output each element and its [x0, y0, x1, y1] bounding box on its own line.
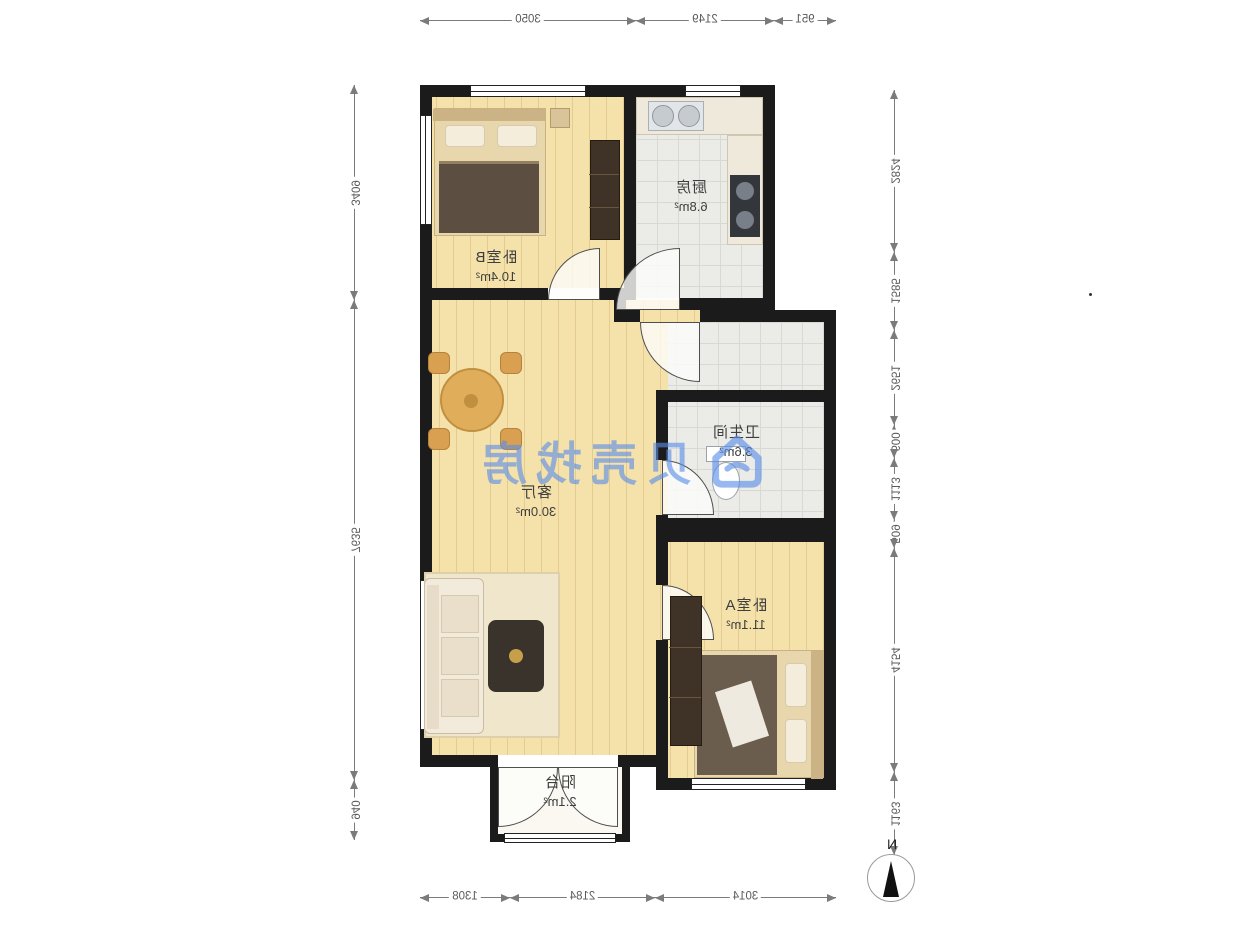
dim-bottom-3: 1308 [420, 897, 510, 898]
wall-entry-left [700, 310, 836, 322]
watermark-text: 贝壳找房 [472, 428, 692, 494]
bedroom-b-wardrobe [590, 140, 620, 240]
dim-value: 2149 [689, 14, 721, 27]
dining-table [440, 368, 504, 432]
dining-chair [500, 352, 522, 374]
bedroom-a-window [691, 778, 806, 790]
dim-bottom-2: 2184 [510, 897, 655, 898]
bed-pillow [785, 663, 807, 707]
sofa-cushion [441, 637, 479, 675]
room-area: 10.4m² [474, 269, 517, 284]
dim-left-3: 2651 [894, 330, 895, 425]
kitchen-counter-top [636, 97, 763, 135]
room-label-bedroom-b: 卧室B 10.4m² [474, 246, 517, 284]
dim-top-2: 2149 [636, 20, 774, 21]
kitchen-stove [730, 175, 760, 237]
dim-value: 940 [347, 797, 360, 822]
wall-beda-right-upper [656, 530, 668, 585]
coffee-table-decor [509, 649, 523, 663]
stove-burner [736, 211, 754, 229]
dim-value: 951 [792, 14, 817, 27]
dim-top-1: 951 [774, 20, 836, 21]
dim-bottom-1: 3014 [655, 897, 836, 898]
dim-left-2: 1585 [894, 252, 895, 330]
room-name: 阳台 [543, 771, 576, 792]
sofa [424, 578, 484, 734]
wall-beda-top [656, 530, 836, 542]
bed-pillow [497, 125, 537, 147]
wall-living-bottom-left [618, 755, 656, 767]
dim-left-1: 2824 [894, 90, 895, 252]
dim-left-4: 600 [894, 425, 895, 458]
wardrobe-divider [589, 207, 619, 208]
wardrobe-divider [669, 697, 701, 698]
wall-balcony-right [490, 767, 498, 842]
dim-value: 1585 [887, 275, 900, 307]
bedroom-b-nightstand [550, 108, 570, 128]
bed-pillow [785, 719, 807, 763]
bedroom-b-bed [434, 108, 546, 236]
wall-kitchen-left [763, 85, 775, 310]
dim-right-2: 7635 [354, 300, 355, 780]
watermark: 贝壳找房 [472, 428, 768, 494]
sofa-cushion [441, 679, 479, 717]
kitchen-sink [648, 101, 704, 131]
wall-kitchen-bottom [680, 298, 775, 310]
room-name: 卧室B [474, 246, 517, 267]
bed-headboard [811, 651, 823, 779]
bed-pillow [445, 125, 485, 147]
room-area: 6.8m² [674, 199, 707, 214]
coffee-table [488, 620, 544, 692]
wall-beda-right-lower [656, 640, 668, 790]
dim-left-5: 1113 [894, 458, 895, 520]
wall-wing-left [824, 310, 836, 790]
wall-entry-right [614, 310, 640, 322]
balcony-window [504, 833, 616, 843]
wall-balcony-left [622, 767, 630, 842]
sink-bowl [678, 105, 700, 127]
kitchen-window-top [685, 85, 741, 97]
sofa-back [427, 585, 439, 729]
table-center [464, 394, 478, 408]
dim-right-1: 3409 [354, 85, 355, 300]
dining-chair [428, 428, 450, 450]
bedroom-a-bed [694, 650, 824, 778]
dim-value: 7635 [347, 524, 360, 556]
mirrored-floor-plan: 卧室B 10.4m² 厨房 6.8m² 客厅 30.0m² 卫生间 3.6m² … [0, 0, 1236, 925]
beike-logo-icon [706, 430, 768, 492]
dim-value: 1308 [449, 891, 481, 904]
dim-right-3: 940 [354, 780, 355, 840]
wall-bedb-bottom-right [420, 288, 548, 300]
compass-north-label: N [880, 836, 904, 852]
dining-chair [428, 352, 450, 374]
dim-value: 3409 [347, 177, 360, 209]
dim-left-6: 509 [894, 520, 895, 548]
room-area: 11.1m² [724, 617, 767, 632]
bedroom-a-wardrobe [670, 596, 702, 746]
dim-value: 1163 [887, 798, 900, 829]
dim-top-3: 3050 [420, 20, 636, 21]
wardrobe-divider [669, 647, 701, 648]
bedroom-b-window-side [420, 115, 432, 225]
bed-headboard [433, 109, 545, 121]
room-area: 30.0m² [516, 504, 556, 519]
dim-value: 509 [887, 521, 900, 546]
dim-left-7: 4154 [894, 548, 895, 772]
stove-burner [736, 182, 754, 200]
sofa-cushion [441, 595, 479, 633]
dim-value: 600 [887, 429, 900, 454]
dim-value: 3014 [730, 891, 762, 904]
wall-bath-top [656, 390, 824, 402]
dim-value: 2184 [567, 891, 599, 904]
room-name: 厨房 [674, 176, 707, 197]
bedroom-b-window-top [470, 85, 586, 97]
room-area: 2.1m² [543, 794, 576, 809]
dim-value: 2651 [887, 362, 900, 394]
room-name: 卧室A [724, 594, 767, 615]
wall-living-bottom-right [420, 755, 498, 767]
bed-blanket [439, 161, 539, 233]
floor-plan-screenshot: 卧室B 10.4m² 厨房 6.8m² 客厅 30.0m² 卫生间 3.6m² … [0, 0, 1236, 925]
room-label-kitchen: 厨房 6.8m² [674, 176, 707, 214]
dim-value: 4154 [887, 644, 900, 676]
wall-bath-bottom [656, 518, 824, 530]
stray-dot [1089, 293, 1092, 296]
compass [867, 854, 915, 902]
dim-value: 1113 [887, 474, 900, 504]
dim-value: 3050 [512, 14, 544, 27]
wardrobe-divider [589, 174, 619, 175]
sink-bowl [652, 105, 674, 127]
room-label-balcony: 阳台 2.1m² [543, 771, 576, 809]
room-label-bedroom-a: 卧室A 11.1m² [724, 594, 767, 632]
dim-value: 2824 [887, 155, 900, 187]
compass-needle-icon [883, 861, 899, 897]
